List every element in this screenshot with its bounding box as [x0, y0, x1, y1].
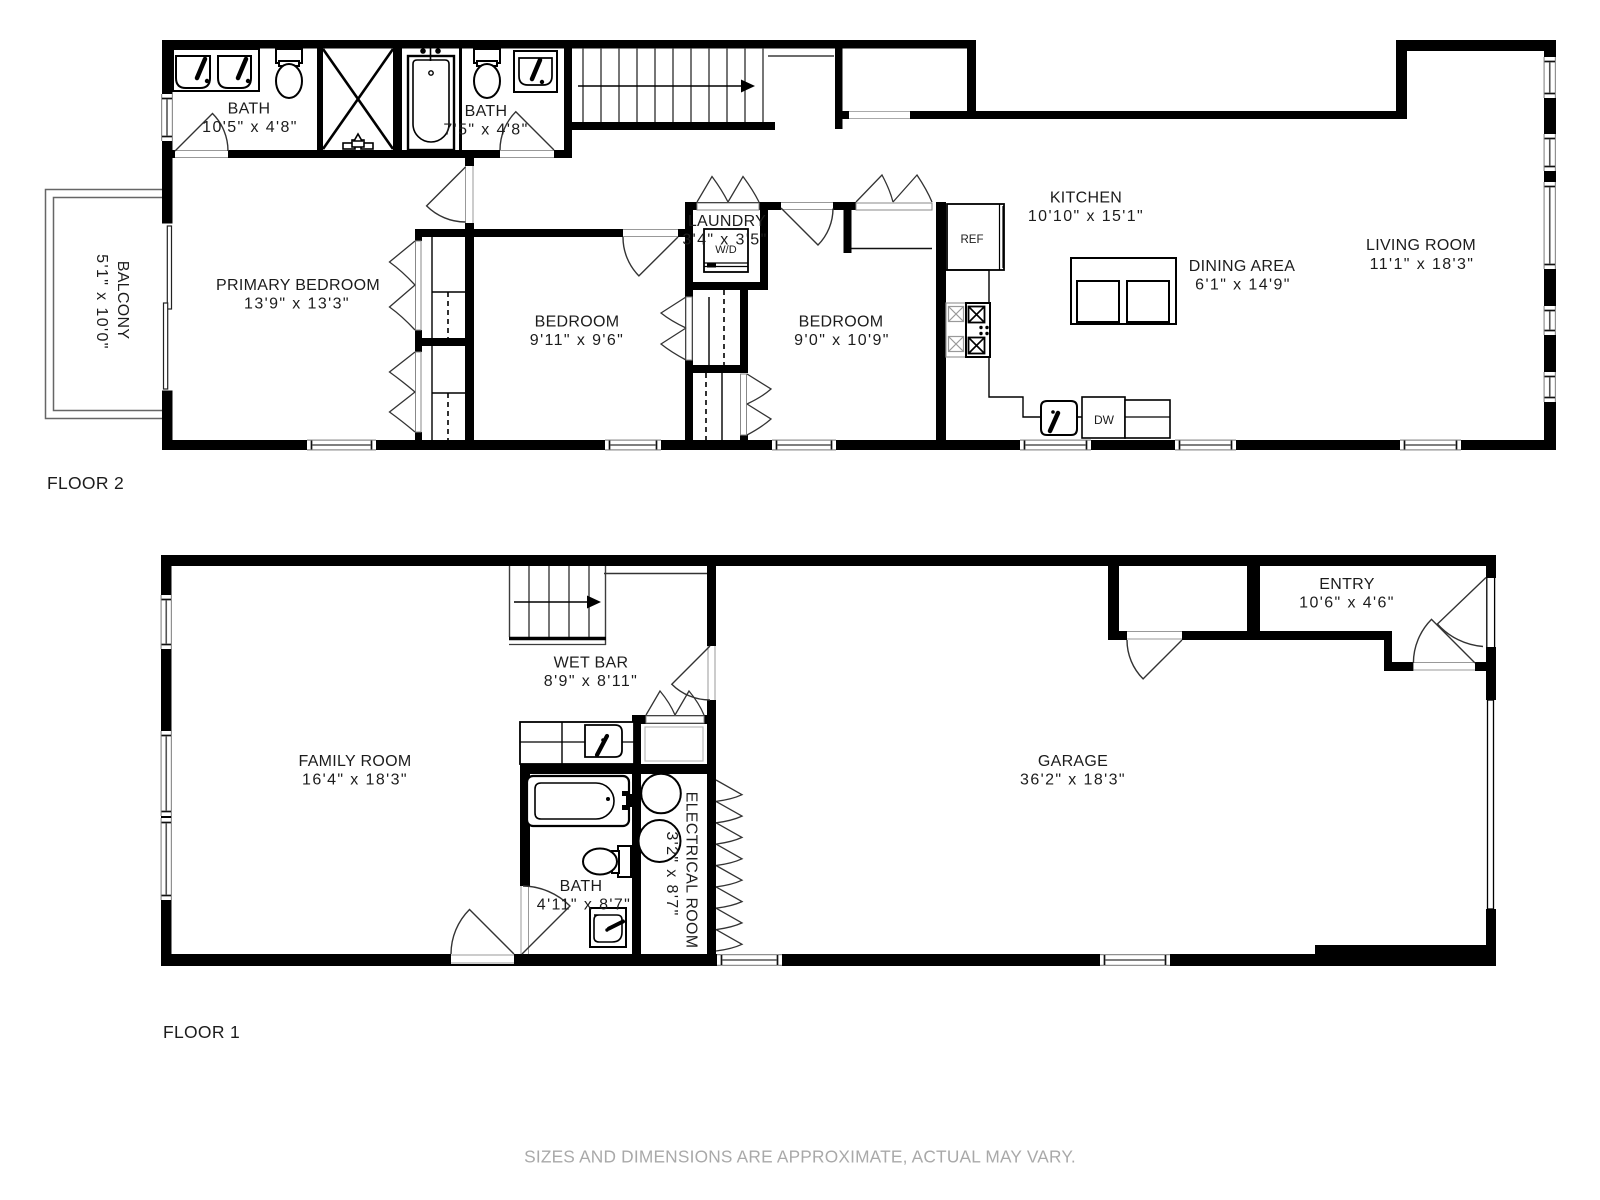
- svg-text:10'10" x 15'1": 10'10" x 15'1": [1028, 208, 1144, 225]
- svg-text:3'4" x 3'5": 3'4" x 3'5": [682, 232, 767, 249]
- svg-text:8'9" x 8'11": 8'9" x 8'11": [544, 673, 638, 690]
- svg-text:BATH: BATH: [560, 878, 603, 895]
- svg-text:WET BAR: WET BAR: [554, 655, 629, 672]
- svg-text:10'5" x 4'8": 10'5" x 4'8": [202, 119, 298, 136]
- svg-text:16'4" x 18'3": 16'4" x 18'3": [302, 772, 408, 789]
- svg-text:BATH: BATH: [228, 101, 271, 118]
- svg-text:FLOOR 1: FLOOR 1: [163, 1022, 240, 1042]
- svg-text:BEDROOM: BEDROOM: [535, 314, 620, 331]
- svg-text:9'0" x 10'9": 9'0" x 10'9": [794, 332, 890, 349]
- svg-text:DW: DW: [1094, 413, 1115, 427]
- svg-text:FLOOR 2: FLOOR 2: [47, 473, 124, 493]
- svg-text:3'2" x 8'7": 3'2" x 8'7": [663, 831, 680, 916]
- svg-text:36'2" x 18'3": 36'2" x 18'3": [1020, 772, 1126, 789]
- svg-text:DINING AREA: DINING AREA: [1189, 258, 1295, 275]
- svg-text:6'1" x 14'9": 6'1" x 14'9": [1195, 277, 1291, 294]
- svg-text:LAUNDRY: LAUNDRY: [688, 213, 766, 230]
- svg-text:PRIMARY BEDROOM: PRIMARY BEDROOM: [216, 277, 380, 294]
- svg-text:5'1" x 10'0": 5'1" x 10'0": [93, 254, 110, 350]
- svg-text:BATH: BATH: [465, 103, 508, 120]
- svg-text:LIVING ROOM: LIVING ROOM: [1366, 237, 1476, 254]
- svg-text:GARAGE: GARAGE: [1038, 753, 1108, 770]
- svg-text:REF: REF: [961, 234, 984, 246]
- svg-text:9'11" x 9'6": 9'11" x 9'6": [530, 332, 624, 349]
- svg-text:SIZES AND DIMENSIONS ARE APPRO: SIZES AND DIMENSIONS ARE APPROXIMATE, AC…: [524, 1147, 1076, 1167]
- svg-text:ENTRY: ENTRY: [1319, 576, 1374, 593]
- svg-text:BEDROOM: BEDROOM: [799, 314, 884, 331]
- svg-text:BALCONY: BALCONY: [114, 261, 131, 340]
- svg-text:ELECTRICAL ROOM: ELECTRICAL ROOM: [683, 792, 700, 949]
- svg-text:FAMILY ROOM: FAMILY ROOM: [299, 753, 412, 770]
- svg-text:10'6" x 4'6": 10'6" x 4'6": [1299, 595, 1395, 612]
- svg-text:13'9" x 13'3": 13'9" x 13'3": [244, 296, 350, 313]
- svg-text:7'5" x 4'8": 7'5" x 4'8": [443, 122, 528, 139]
- svg-text:4'11" x 8'7": 4'11" x 8'7": [537, 897, 631, 914]
- svg-text:11'1" x 18'3": 11'1" x 18'3": [1370, 256, 1475, 273]
- svg-text:KITCHEN: KITCHEN: [1050, 190, 1122, 207]
